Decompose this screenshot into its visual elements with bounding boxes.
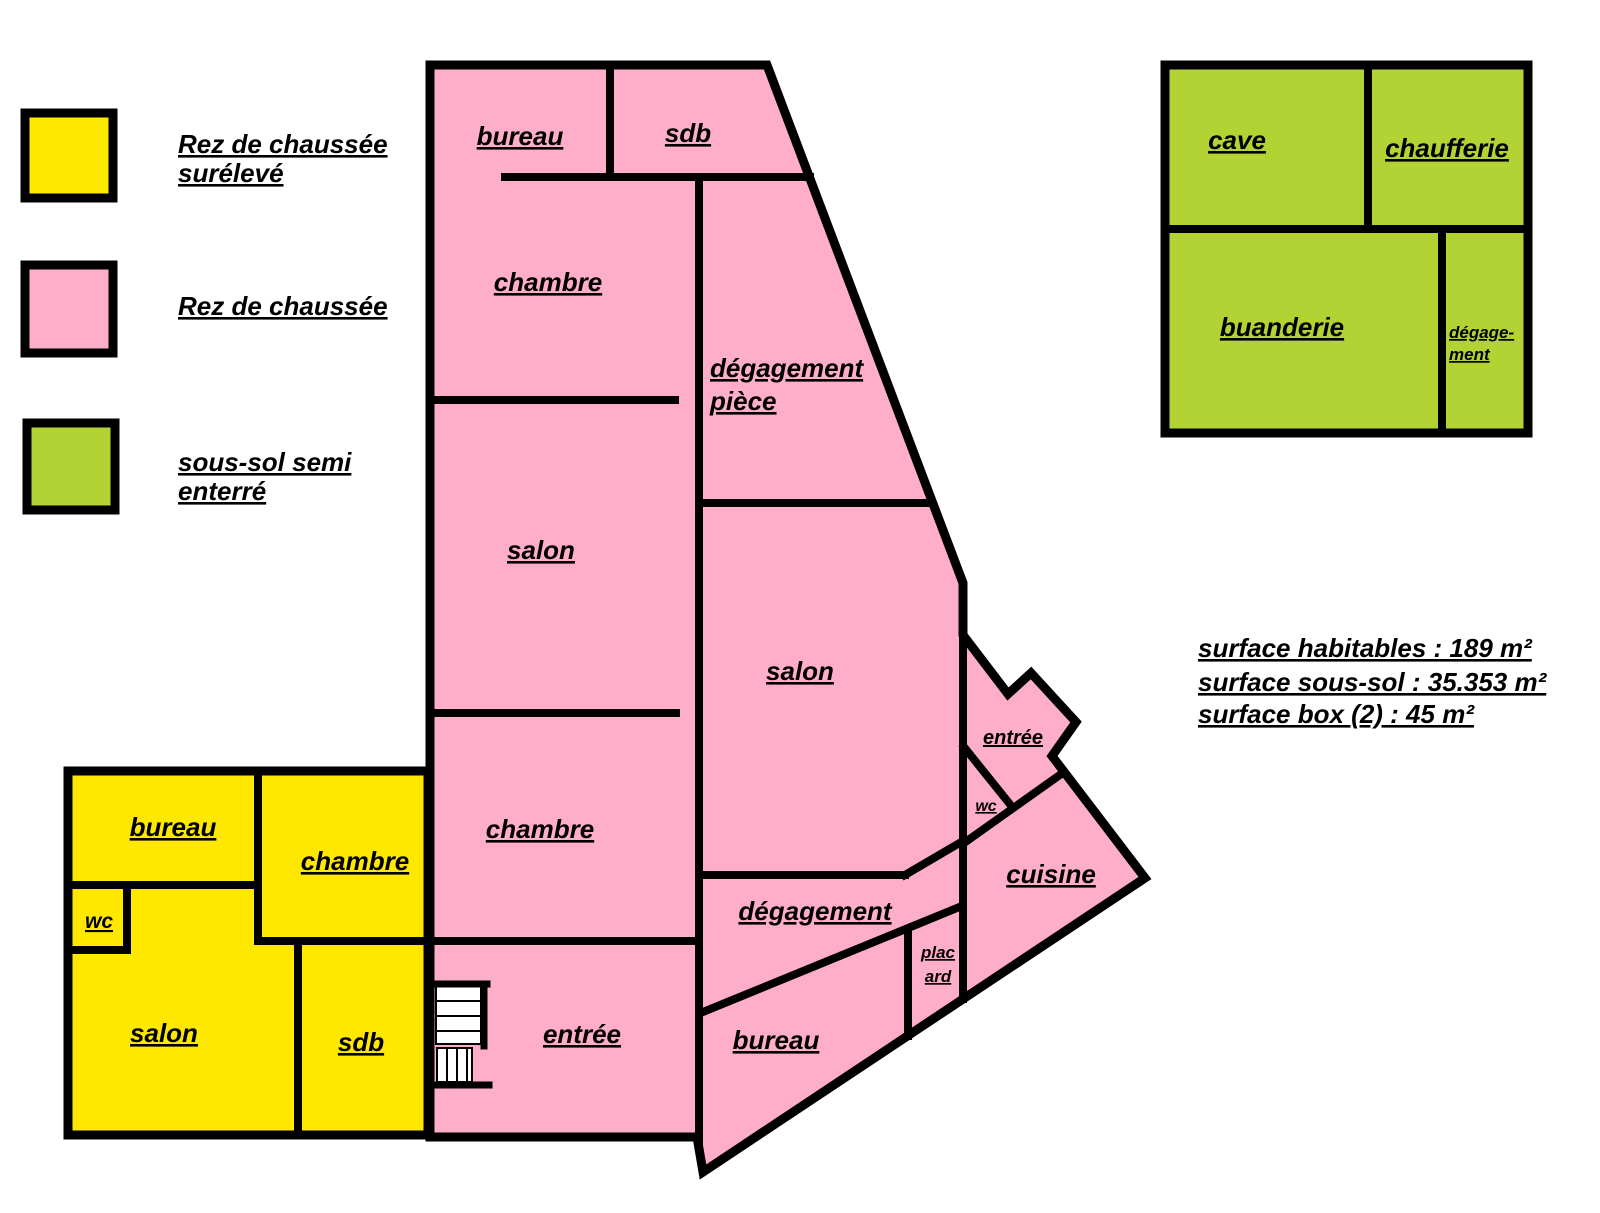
legend-label-sous-sol-line1: sous-sol semi bbox=[178, 447, 352, 477]
sous-sol-outline bbox=[1165, 65, 1528, 433]
room-label-cave: cave bbox=[1208, 125, 1266, 155]
room-label-degagement-ss-line1: dégage- bbox=[1449, 323, 1515, 342]
surface-line-sous-sol: surface sous-sol : 35.353 m² bbox=[1198, 667, 1548, 697]
floor-plan-canvas: Rez de chaussée surélevé Rez de chaussée… bbox=[0, 0, 1600, 1213]
room-label-bureau-y: bureau bbox=[130, 812, 217, 842]
room-label-chaufferie: chaufferie bbox=[1385, 133, 1509, 163]
room-label-salon-left: salon bbox=[507, 535, 575, 565]
room-label-wc-y: wc bbox=[85, 910, 113, 933]
room-label-degagement-corridor: dégagement bbox=[738, 896, 892, 926]
floor-plan-page: Rez de chaussée surélevé Rez de chaussée… bbox=[0, 0, 1600, 1213]
surface-line-box: surface box (2) : 45 m² bbox=[1198, 699, 1475, 729]
room-label-degagement-piece-line2: pièce bbox=[709, 386, 777, 416]
room-label-chambre-y: chambre bbox=[301, 846, 409, 876]
surface-line-habitables: surface habitables : 189 m² bbox=[1198, 633, 1533, 663]
legend: Rez de chaussée surélevé Rez de chaussée… bbox=[25, 113, 388, 510]
room-label-sdb: sdb bbox=[665, 118, 711, 148]
legend-label-sous-sol-line2: enterré bbox=[178, 476, 266, 506]
room-label-degagement-ss-line2: ment bbox=[1449, 345, 1491, 364]
room-label-placard-line1: plac bbox=[920, 943, 956, 962]
room-label-sdb-y: sdb bbox=[338, 1027, 384, 1057]
room-label-entree-main: entrée bbox=[543, 1019, 621, 1049]
room-label-chambre-top: chambre bbox=[494, 267, 602, 297]
surface-annotations: surface habitables : 189 m² surface sous… bbox=[1198, 633, 1548, 729]
room-label-chambre-bottom: chambre bbox=[486, 814, 594, 844]
rdc-outline bbox=[430, 65, 1145, 1172]
legend-swatch-rdc-sureleve bbox=[25, 113, 113, 198]
legend-label-rdc-sureleve-line1: Rez de chaussée bbox=[178, 129, 388, 159]
room-label-degagement-piece-line1: dégagement bbox=[710, 353, 864, 383]
room-label-entree-small: entrée bbox=[983, 727, 1043, 749]
legend-label-rdc-sureleve-line2: surélevé bbox=[178, 158, 284, 188]
legend-swatch-sous-sol bbox=[27, 423, 115, 510]
room-label-buanderie: buanderie bbox=[1220, 312, 1344, 342]
room-label-bureau-bottom: bureau bbox=[733, 1025, 820, 1055]
room-label-placard-line2: ard bbox=[925, 967, 952, 986]
room-label-bureau-top: bureau bbox=[477, 121, 564, 151]
room-label-cuisine: cuisine bbox=[1006, 859, 1096, 889]
room-label-salon-right: salon bbox=[766, 656, 834, 686]
plan-rdc-sureleve: bureau chambre wc salon sdb bbox=[68, 771, 428, 1135]
room-label-wc-small: wc bbox=[975, 798, 996, 815]
legend-swatch-rdc bbox=[25, 265, 113, 353]
legend-label-rdc: Rez de chaussée bbox=[178, 291, 388, 321]
plan-rdc: bureau sdb chambre dégagement pièce salo… bbox=[430, 65, 1145, 1172]
plan-sous-sol: cave chaufferie buanderie dégage- ment bbox=[1165, 65, 1528, 433]
room-label-salon-y: salon bbox=[130, 1018, 198, 1048]
